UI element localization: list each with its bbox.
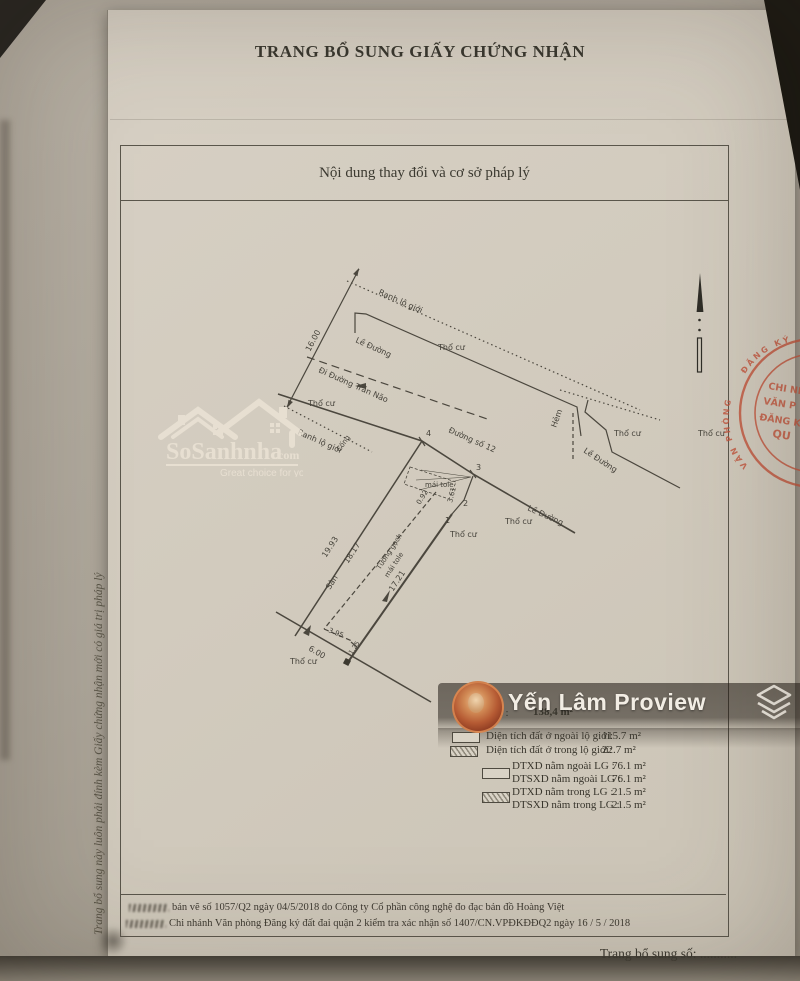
legend-dt-value: 21.5 m²	[612, 799, 646, 811]
verification-line-2: Chi nhánh Văn phòng Đăng ký đất đai quận…	[126, 918, 630, 929]
verification-line-2-text: Chi nhánh Văn phòng Đăng ký đất đai quận…	[169, 918, 630, 929]
overlay-username: Yến Lâm Proview	[508, 689, 706, 716]
legend-dt-label: DTXD nằm trong LG :	[512, 786, 613, 798]
watermark-tagline: Great choice for you	[220, 468, 303, 477]
watermark-brand-text: SoSanhnha	[166, 439, 282, 465]
legend-swatch-inside	[450, 746, 478, 757]
legend-dt-label: DTXD nằm ngoài LG :	[512, 760, 615, 772]
verification-line-1: bản vẽ số 1057/Q2 ngày 04/5/2018 do Công…	[129, 902, 564, 913]
photo-of-certificate-page: TRANG BỔ SUNG GIẤY CHỨNG NHẬN Nội dung t…	[0, 0, 800, 981]
sosanhnha-watermark: SoSanhnha .com Great choice for you	[158, 393, 303, 477]
content-box-header: Nội dung thay đổi và cơ sở pháp lý	[121, 146, 728, 201]
legend-swatch-dt-inside	[482, 792, 510, 803]
photo-dark-corner-topleft	[0, 0, 46, 58]
handwriting-scribble	[129, 904, 169, 912]
verification-box: bản vẽ số 1057/Q2 ngày 04/5/2018 do Công…	[121, 894, 726, 936]
avatar-face	[468, 693, 484, 713]
legend-dt-value: 76.1 m²	[612, 773, 646, 785]
legend-dt-value: 76.1 m²	[612, 760, 646, 772]
watermark-chimney-right	[279, 407, 287, 418]
watermark-underline	[166, 464, 298, 466]
legend-row-value: 115.7 m²	[602, 730, 641, 742]
watermark-house-roof-left	[161, 410, 235, 437]
supplement-page-number: Trang bổ sung số: ...........	[545, 946, 737, 962]
legend-row-label: Diện tích đất ở trong lộ giới:	[486, 744, 612, 756]
page-title: TRANG BỔ SUNG GIẤY CHỨNG NHẬN	[120, 42, 720, 62]
handwriting-scribble	[126, 920, 166, 928]
verification-line-1-text: bản vẽ số 1057/Q2 ngày 04/5/2018 do Công…	[172, 902, 564, 913]
watermark-brand-suffix: .com	[275, 448, 299, 462]
content-box: Nội dung thay đổi và cơ sở pháp lý	[120, 145, 729, 937]
photo-dark-left-edge	[0, 120, 10, 760]
legend-swatch-outside	[452, 732, 480, 743]
legend-dt-label: DTSXD nằm trong LG :	[512, 799, 620, 811]
paper-crease	[110, 119, 792, 120]
diamond-top	[758, 686, 790, 704]
side-legal-note: Trang bổ sung này luôn phải đính kèm Giấ…	[93, 415, 109, 935]
watermark-chimney-left	[178, 415, 185, 425]
legend-dt-value: 21.5 m²	[612, 786, 646, 798]
proview-diamond-icon	[750, 684, 798, 726]
legend-swatch-dt-outside	[482, 768, 510, 779]
legend-dt-label: DTSXD nằm ngoài LG :	[512, 773, 621, 785]
legend-row-value: 22.7 m²	[602, 744, 636, 756]
legend-row-label: Diện tích đất ở ngoài lộ giới:	[486, 730, 613, 742]
